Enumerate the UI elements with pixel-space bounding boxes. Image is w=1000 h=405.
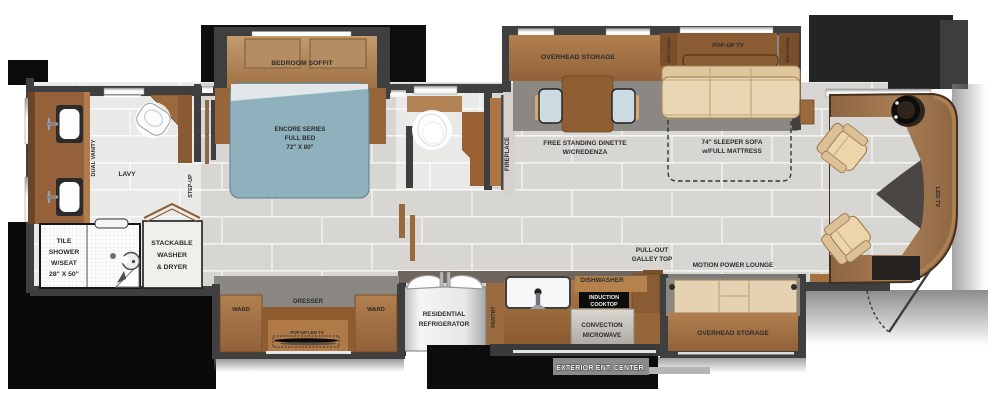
- svg-text:ENCORE SERIES: ENCORE SERIES: [275, 126, 326, 133]
- svg-text:W/CREDENZA: W/CREDENZA: [563, 149, 608, 156]
- svg-text:W/SEAT: W/SEAT: [51, 260, 78, 267]
- svg-text:FREE STANDING DINETTE: FREE STANDING DINETTE: [543, 140, 627, 147]
- svg-text:DRESSER: DRESSER: [293, 298, 323, 305]
- svg-text:POP-UP LED TV: POP-UP LED TV: [290, 330, 324, 335]
- svg-text:DISHWASHER: DISHWASHER: [580, 277, 624, 284]
- svg-text:FULL BED: FULL BED: [285, 135, 316, 142]
- svg-text:CONVECTION: CONVECTION: [581, 322, 623, 329]
- svg-text:RESIDENTIAL: RESIDENTIAL: [423, 311, 466, 318]
- svg-text:BEDROOM SOFFIT: BEDROOM SOFFIT: [271, 60, 333, 67]
- svg-text:LED TV: LED TV: [934, 187, 940, 208]
- svg-text:OVERHEAD STORAGE: OVERHEAD STORAGE: [541, 54, 615, 61]
- svg-text:STEP-UP: STEP-UP: [188, 174, 194, 198]
- svg-text:TILE: TILE: [57, 238, 72, 245]
- svg-text:FIREPLACE: FIREPLACE: [505, 137, 511, 171]
- svg-text:28" X 50": 28" X 50": [49, 271, 79, 278]
- svg-text:SIDE STORAGE: SIDE STORAGE: [667, 36, 671, 62]
- svg-text:MOTION POWER LOUNGE: MOTION POWER LOUNGE: [693, 262, 774, 269]
- svg-text:& DRYER: & DRYER: [157, 264, 187, 271]
- svg-text:REFRIGERATOR: REFRIGERATOR: [419, 321, 470, 328]
- svg-text:STACKABLE: STACKABLE: [151, 240, 193, 247]
- svg-text:WASHER: WASHER: [157, 252, 187, 259]
- svg-text:PULL-OUT: PULL-OUT: [636, 247, 668, 254]
- svg-text:COOKTOP: COOKTOP: [590, 302, 618, 308]
- svg-text:74" SLEEPER SOFA: 74" SLEEPER SOFA: [702, 139, 763, 146]
- svg-text:EXTERIOR ENT. CENTER: EXTERIOR ENT. CENTER: [556, 365, 644, 372]
- svg-text:LAVY: LAVY: [118, 171, 136, 178]
- svg-text:GALLEY TOP: GALLEY TOP: [632, 256, 673, 263]
- svg-text:POP-UP TV: POP-UP TV: [712, 43, 743, 49]
- svg-text:SHOWER: SHOWER: [49, 249, 80, 256]
- svg-text:OVERHEAD STORAGE: OVERHEAD STORAGE: [697, 330, 769, 337]
- svg-text:w/FULL MATTRESS: w/FULL MATTRESS: [701, 148, 762, 155]
- svg-text:SIDE STORAGE: SIDE STORAGE: [786, 36, 790, 62]
- svg-text:DUAL VANITY: DUAL VANITY: [91, 139, 97, 176]
- svg-text:INDUCTION: INDUCTION: [589, 295, 619, 301]
- svg-text:MICROWAVE: MICROWAVE: [583, 332, 621, 339]
- svg-text:72" X 80": 72" X 80": [286, 144, 313, 151]
- svg-text:PANTRY: PANTRY: [491, 306, 497, 328]
- svg-text:WARD: WARD: [367, 307, 385, 313]
- svg-text:WARD: WARD: [232, 307, 250, 313]
